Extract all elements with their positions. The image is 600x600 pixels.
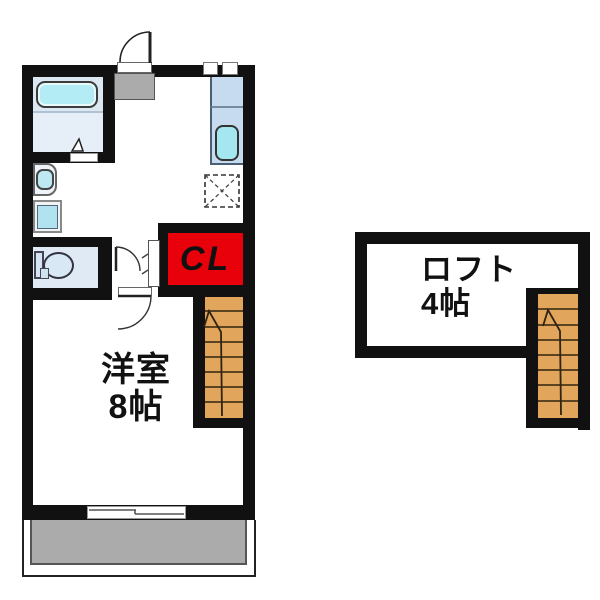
refrigerator-space-cross [205, 175, 239, 207]
kitchen-sink [215, 125, 239, 161]
loft-name: ロフト [421, 253, 531, 287]
loft-wall-bottom [355, 346, 531, 358]
loft-size: 4帖 [421, 287, 531, 321]
entrance-threshold [117, 62, 152, 73]
toilet-seat-step [40, 268, 49, 279]
main-room-size: 8帖 [92, 389, 180, 426]
closet-label: CL [180, 240, 231, 279]
closet-box: CL [168, 233, 243, 285]
loft-wall-top [355, 232, 590, 244]
washbasin-bowl [36, 169, 54, 190]
bathtub [36, 81, 98, 108]
room-door-arc [118, 296, 151, 329]
main-room-label: 洋室 8帖 [92, 352, 180, 427]
washing-machine-pan-inner [37, 205, 58, 229]
bathroom-door-gap [70, 153, 98, 162]
sliding-window [87, 506, 186, 519]
balcony-deck [30, 520, 247, 565]
floor-plan: CL [0, 0, 600, 600]
vent-window-2 [222, 62, 238, 75]
toilet-door-arc [116, 247, 140, 271]
loft-wall-left [355, 232, 367, 358]
wall-toilet-bottom [22, 288, 112, 300]
closet-folding-door [148, 240, 160, 287]
entrance-step [114, 73, 155, 100]
main-room-name: 洋室 [92, 352, 180, 389]
refrigerator-space [205, 175, 239, 207]
bathroom-floor-lower [33, 112, 103, 152]
room-door-threshold [118, 287, 152, 296]
staircase-first-floor [205, 297, 243, 418]
wall-bathroom-bottom [22, 152, 115, 163]
staircase-loft [538, 294, 578, 418]
loft-label: ロフト 4帖 [421, 253, 531, 321]
entrance-door-arc [120, 32, 150, 62]
vent-window-1 [203, 62, 218, 75]
